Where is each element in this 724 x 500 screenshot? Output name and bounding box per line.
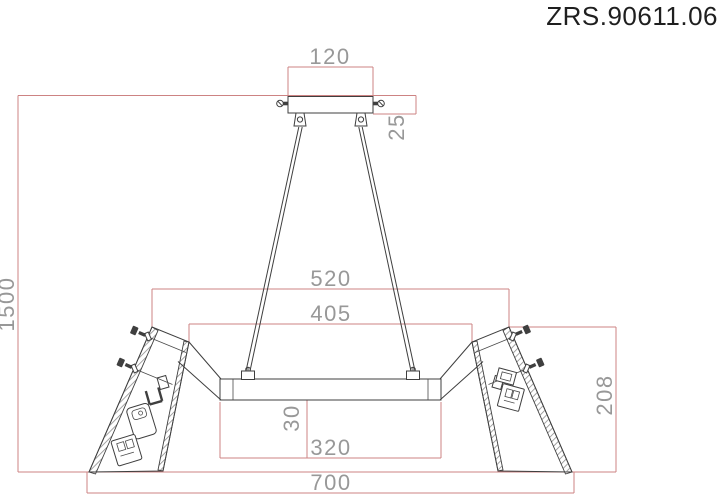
canopy-screw-right-icon xyxy=(373,100,385,107)
dim-label-320: 320 xyxy=(310,435,351,460)
cable-fitting-right xyxy=(407,367,420,379)
canopy-screw-left-icon xyxy=(277,100,289,107)
dim-label-30: 30 xyxy=(279,404,304,431)
cable-fitting-left xyxy=(242,367,255,379)
left-screw-1-icon xyxy=(130,325,147,339)
dim-label-405: 405 xyxy=(310,301,351,326)
dim-line-120 xyxy=(288,67,373,96)
bar-body xyxy=(220,379,441,400)
center-bar xyxy=(220,367,441,400)
dim-label-700: 700 xyxy=(310,470,351,495)
left-shade xyxy=(89,325,221,474)
right-shade xyxy=(440,324,572,474)
dim-label-520: 520 xyxy=(310,266,351,291)
ceiling-canopy xyxy=(277,97,385,127)
technical-drawing: 120 25 1500 520 405 30 320 700 208 ZRS.9… xyxy=(0,0,724,500)
hanger-lug-left xyxy=(294,113,306,126)
dim-label-208: 208 xyxy=(592,374,617,415)
drawing-title: ZRS.90611.06 xyxy=(546,1,718,31)
suspension-cable-right xyxy=(359,127,415,371)
dim-line-405 xyxy=(189,324,472,342)
dim-line-25 xyxy=(373,96,416,115)
dim-label-1500: 1500 xyxy=(0,277,19,332)
dim-label-120: 120 xyxy=(309,44,350,69)
suspension-cable-left xyxy=(246,127,302,371)
dim-label-25: 25 xyxy=(384,113,409,140)
left-screw-2-icon xyxy=(116,357,133,371)
right-screw-2-icon xyxy=(528,357,545,371)
hanger-lug-right xyxy=(355,113,367,126)
canopy-body xyxy=(288,97,373,114)
